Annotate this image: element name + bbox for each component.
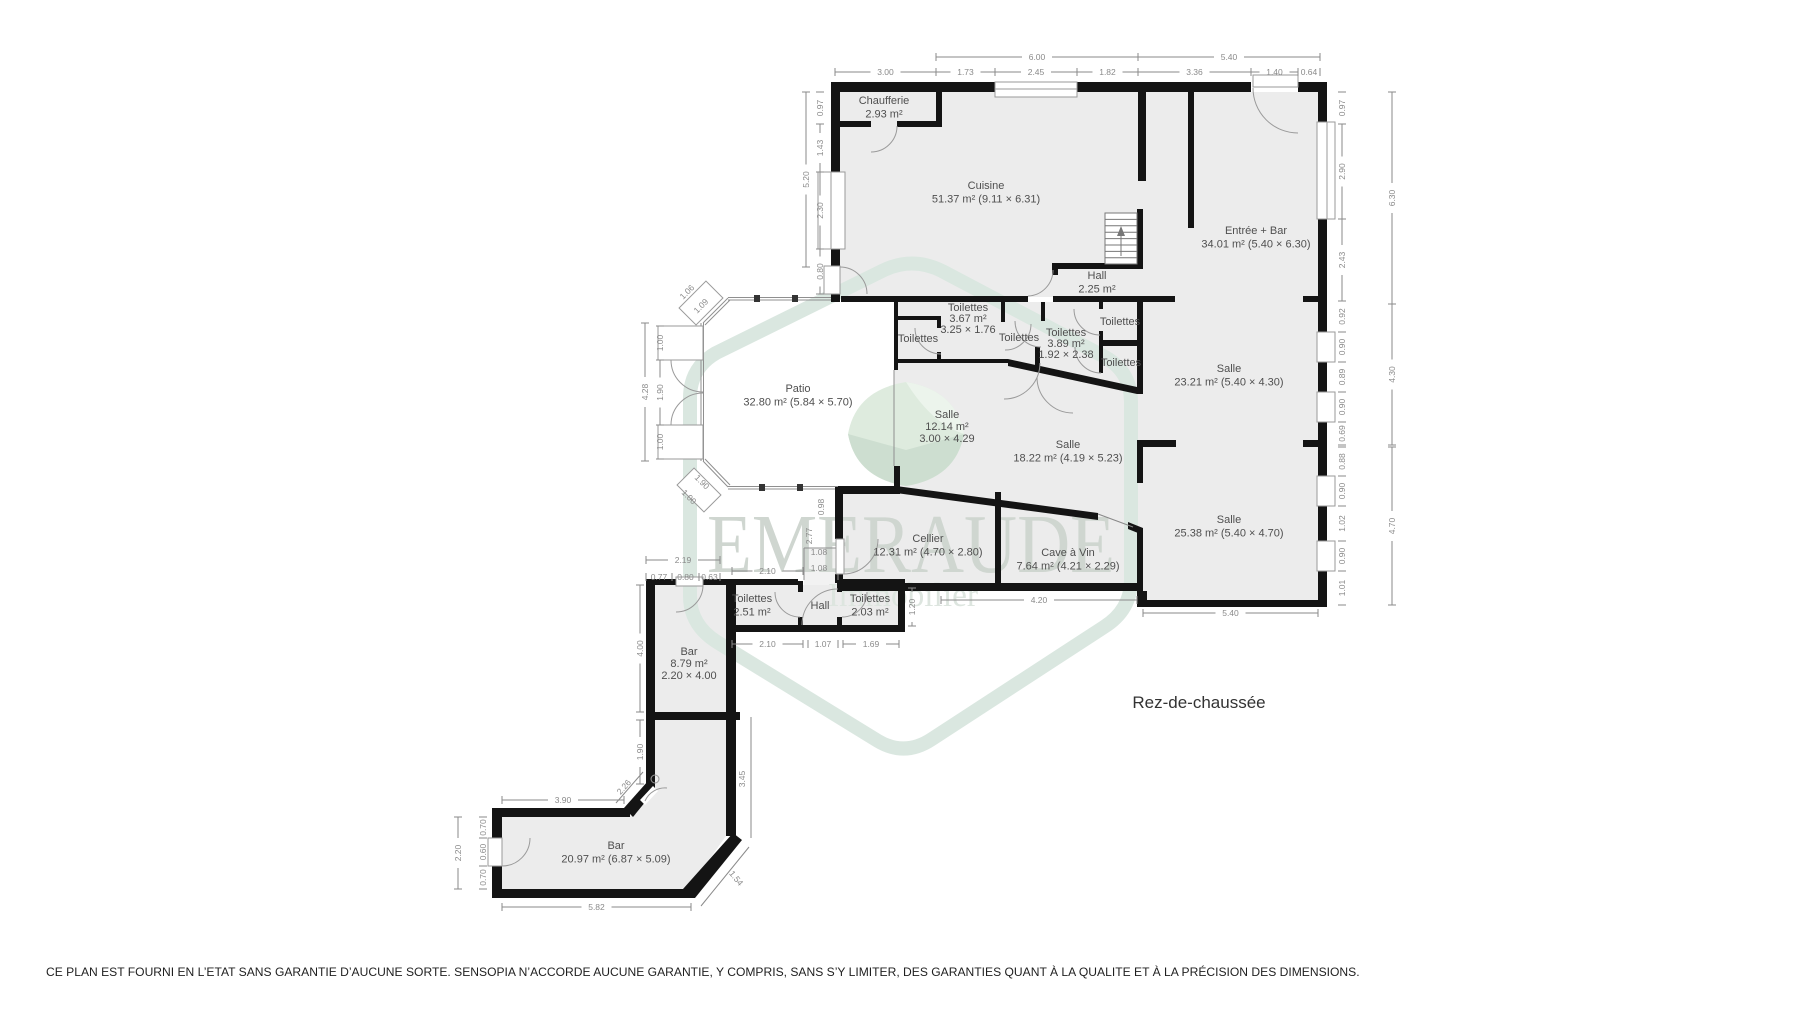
svg-text:0.70: 0.70	[478, 819, 488, 836]
svg-text:0.90: 0.90	[1337, 547, 1347, 564]
svg-text:1.69: 1.69	[863, 639, 880, 649]
svg-text:51.37 m² (9.11 × 6.31): 51.37 m² (9.11 × 6.31)	[932, 194, 1040, 206]
svg-text:1.90: 1.90	[635, 743, 645, 760]
svg-text:Cave à Vin: Cave à Vin	[1041, 547, 1095, 559]
svg-text:3.00 × 4.29: 3.00 × 4.29	[919, 433, 974, 445]
svg-text:4.20: 4.20	[1031, 595, 1048, 605]
svg-text:0.97: 0.97	[1337, 99, 1347, 116]
svg-text:Toilettes: Toilettes	[732, 593, 773, 605]
svg-text:4.30: 4.30	[1387, 366, 1397, 383]
svg-text:0.88: 0.88	[1337, 453, 1347, 470]
svg-text:Salle: Salle	[1056, 439, 1080, 451]
svg-text:Toilettes: Toilettes	[999, 332, 1040, 344]
svg-text:Toilettes: Toilettes	[1100, 316, 1141, 328]
svg-text:3.90: 3.90	[555, 795, 572, 805]
svg-text:0.97: 0.97	[815, 99, 825, 116]
svg-text:1.08: 1.08	[811, 547, 828, 557]
svg-text:5.20: 5.20	[801, 171, 811, 188]
svg-text:1.73: 1.73	[957, 67, 974, 77]
svg-text:5.40: 5.40	[1221, 52, 1238, 62]
svg-text:Salle: Salle	[935, 409, 959, 421]
svg-text:25.38 m² (5.40 × 4.70): 25.38 m² (5.40 × 4.70)	[1174, 528, 1283, 540]
svg-text:Hall: Hall	[1088, 270, 1107, 282]
svg-text:2.30: 2.30	[815, 202, 825, 219]
svg-text:2.93 m²: 2.93 m²	[865, 109, 903, 121]
svg-text:Bar: Bar	[607, 840, 624, 852]
svg-text:Cellier: Cellier	[912, 533, 944, 545]
svg-text:Patio: Patio	[785, 383, 810, 395]
svg-text:Cuisine: Cuisine	[968, 180, 1005, 192]
svg-text:2.19: 2.19	[675, 555, 692, 565]
svg-text:Salle: Salle	[1217, 363, 1241, 375]
svg-text:4.00: 4.00	[635, 640, 645, 657]
svg-text:1.92 × 2.38: 1.92 × 2.38	[1038, 349, 1093, 361]
svg-text:0.70: 0.70	[478, 869, 488, 886]
svg-text:8.79 m²: 8.79 m²	[670, 658, 708, 670]
svg-text:0.90: 0.90	[1337, 338, 1347, 355]
svg-text:Entrée + Bar: Entrée + Bar	[1225, 225, 1287, 237]
svg-text:2.77: 2.77	[804, 527, 814, 544]
svg-text:0.98: 0.98	[816, 498, 826, 515]
svg-text:2.10: 2.10	[759, 566, 776, 576]
svg-text:0.69: 0.69	[1337, 425, 1347, 442]
svg-text:Chaufferie: Chaufferie	[859, 95, 910, 107]
svg-text:4.28: 4.28	[640, 383, 650, 400]
svg-text:1.43: 1.43	[815, 139, 825, 156]
svg-text:1.20: 1.20	[907, 598, 917, 615]
svg-text:3.25 × 1.76: 3.25 × 1.76	[940, 324, 995, 336]
svg-text:20.97 m² (6.87 × 5.09): 20.97 m² (6.87 × 5.09)	[561, 854, 670, 866]
svg-text:32.80 m² (5.84 × 5.70): 32.80 m² (5.84 × 5.70)	[743, 397, 852, 409]
svg-text:Toilettes: Toilettes	[850, 593, 891, 605]
svg-text:0.64: 0.64	[1301, 67, 1318, 77]
svg-text:0.60: 0.60	[478, 843, 488, 860]
svg-text:23.21 m² (5.40 × 4.30): 23.21 m² (5.40 × 4.30)	[1174, 377, 1283, 389]
svg-text:34.01 m² (5.40 × 6.30): 34.01 m² (5.40 × 6.30)	[1201, 239, 1310, 251]
svg-text:7.64 m² (4.21 × 2.29): 7.64 m² (4.21 × 2.29)	[1016, 561, 1119, 573]
svg-text:3.36: 3.36	[1186, 67, 1203, 77]
svg-text:0.63: 0.63	[701, 572, 718, 582]
svg-text:1.01: 1.01	[1337, 579, 1347, 596]
svg-text:0.77: 0.77	[651, 572, 668, 582]
svg-text:2.25 m²: 2.25 m²	[1078, 284, 1116, 296]
svg-text:0.80: 0.80	[677, 572, 694, 582]
svg-text:2.43: 2.43	[1337, 251, 1347, 268]
svg-text:1.82: 1.82	[1099, 67, 1116, 77]
svg-text:5.82: 5.82	[588, 902, 605, 912]
svg-text:4.70: 4.70	[1387, 517, 1397, 534]
svg-text:3.00: 3.00	[877, 67, 894, 77]
svg-text:2.03 m²: 2.03 m²	[851, 607, 889, 619]
svg-text:0.90: 0.90	[1337, 398, 1347, 415]
svg-text:Toilettes: Toilettes	[1101, 357, 1142, 369]
svg-text:1.40: 1.40	[1266, 67, 1283, 77]
svg-text:3.45: 3.45	[737, 770, 747, 787]
svg-text:12.14 m²: 12.14 m²	[925, 421, 969, 433]
svg-text:2.20 × 4.00: 2.20 × 4.00	[661, 670, 716, 682]
svg-text:6.00: 6.00	[1029, 52, 1046, 62]
svg-text:Bar: Bar	[680, 646, 697, 658]
svg-text:1.00: 1.00	[655, 433, 665, 450]
svg-text:2.90: 2.90	[1337, 163, 1347, 180]
svg-text:1.07: 1.07	[815, 639, 832, 649]
svg-text:Toilettes: Toilettes	[898, 333, 939, 345]
svg-text:1.90: 1.90	[655, 384, 665, 401]
svg-text:2.51 m²: 2.51 m²	[733, 607, 771, 619]
svg-text:6.30: 6.30	[1387, 189, 1397, 206]
svg-text:2.20: 2.20	[453, 844, 463, 861]
svg-text:Salle: Salle	[1217, 514, 1241, 526]
svg-text:Hall: Hall	[811, 600, 830, 612]
svg-text:1.00: 1.00	[655, 334, 665, 351]
svg-text:18.22 m² (4.19 × 5.23): 18.22 m² (4.19 × 5.23)	[1013, 453, 1122, 465]
svg-text:0.90: 0.90	[1337, 482, 1347, 499]
svg-text:2.10: 2.10	[759, 639, 776, 649]
svg-text:0.80: 0.80	[815, 263, 825, 280]
svg-text:2.45: 2.45	[1028, 67, 1045, 77]
svg-text:0.89: 0.89	[1337, 368, 1347, 385]
svg-text:1.02: 1.02	[1337, 515, 1347, 532]
svg-text:12.31 m² (4.70 × 2.80): 12.31 m² (4.70 × 2.80)	[873, 547, 982, 559]
svg-text:1.08: 1.08	[811, 563, 828, 573]
svg-text:5.40: 5.40	[1222, 608, 1239, 618]
svg-text:0.92: 0.92	[1337, 308, 1347, 325]
svg-text:CE PLAN EST FOURNI EN L’ETAT S: CE PLAN EST FOURNI EN L’ETAT SANS GARANT…	[46, 964, 1360, 979]
svg-text:Rez-de-chaussée: Rez-de-chaussée	[1132, 693, 1265, 712]
